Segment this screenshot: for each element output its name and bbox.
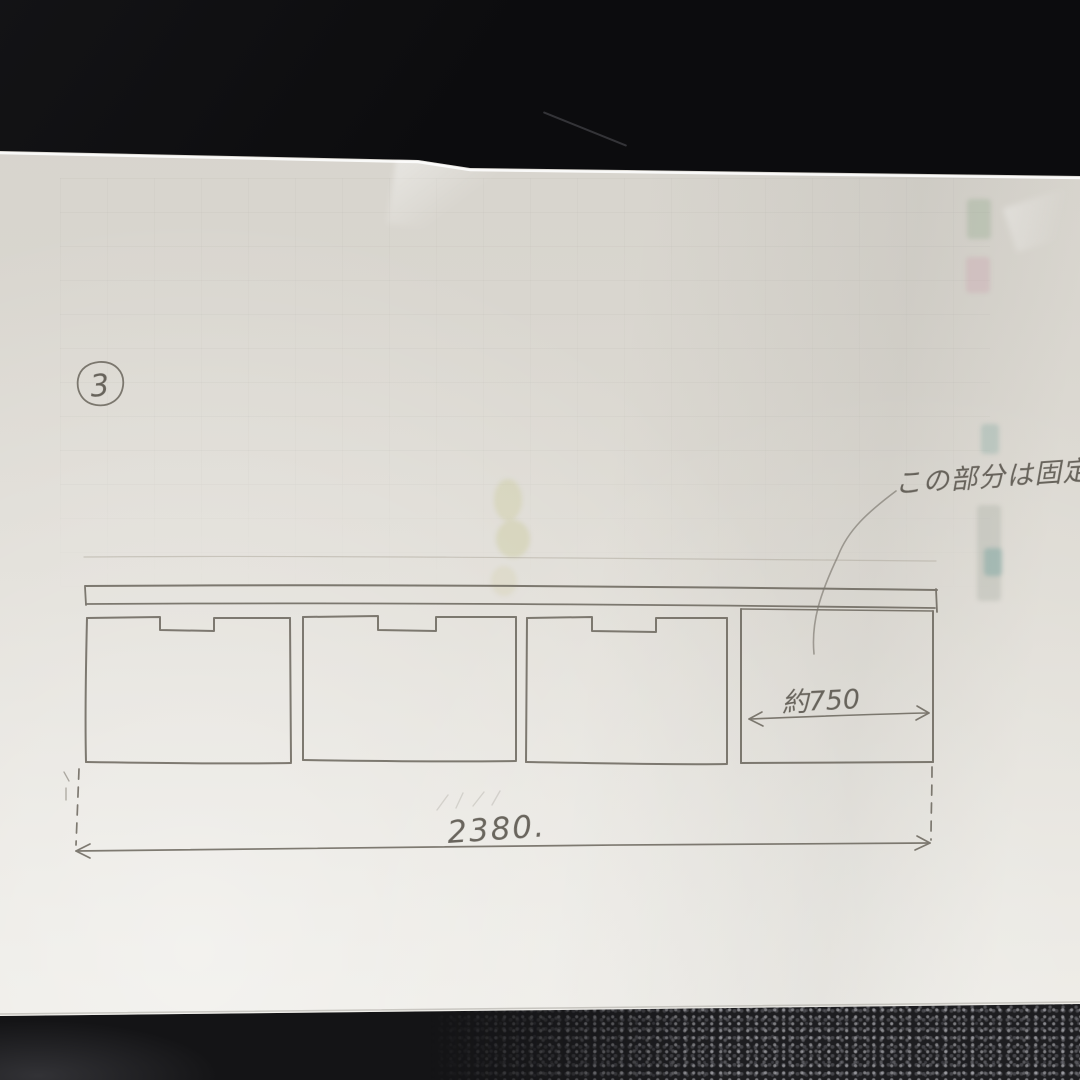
drawer-box-3	[526, 617, 727, 764]
top-shelf-board	[85, 585, 937, 612]
annotation-leader-line	[813, 491, 896, 654]
erased-pencil-marks	[437, 791, 500, 810]
drawer-box-1	[86, 617, 291, 763]
dimension-750-label: 約750	[781, 684, 861, 719]
construction-line	[84, 556, 936, 561]
drawer-box-2	[303, 616, 516, 761]
dimension-2380-label: 2380.	[446, 808, 547, 851]
annotation-text: この部分は固定	[893, 455, 1080, 500]
leather-crackle-texture	[430, 1000, 1080, 1080]
page-number-label: 3	[89, 368, 111, 405]
leather-sheen	[0, 1020, 220, 1080]
photo-of-sketch: 3 この部分は固定 約750 2380.	[0, 0, 1080, 1080]
